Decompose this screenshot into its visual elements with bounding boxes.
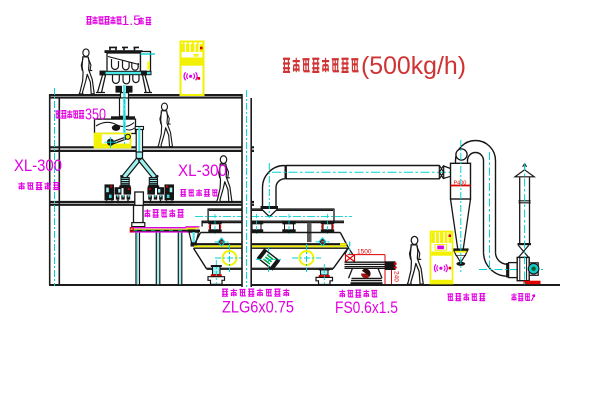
svg-text:ZLG6x0.75: ZLG6x0.75 [222,299,294,317]
svg-text:1500: 1500 [357,249,372,256]
svg-text:350: 350 [85,107,106,124]
svg-text:1.5: 1.5 [122,12,142,28]
svg-text:FS0.6x1.5: FS0.6x1.5 [335,299,398,317]
svg-text:(500kg/h): (500kg/h) [361,52,466,80]
svg-text:P400: P400 [454,181,467,187]
svg-text:240: 240 [393,271,400,282]
svg-text:XL-300: XL-300 [178,161,227,180]
svg-text:XL-300: XL-300 [14,156,62,175]
